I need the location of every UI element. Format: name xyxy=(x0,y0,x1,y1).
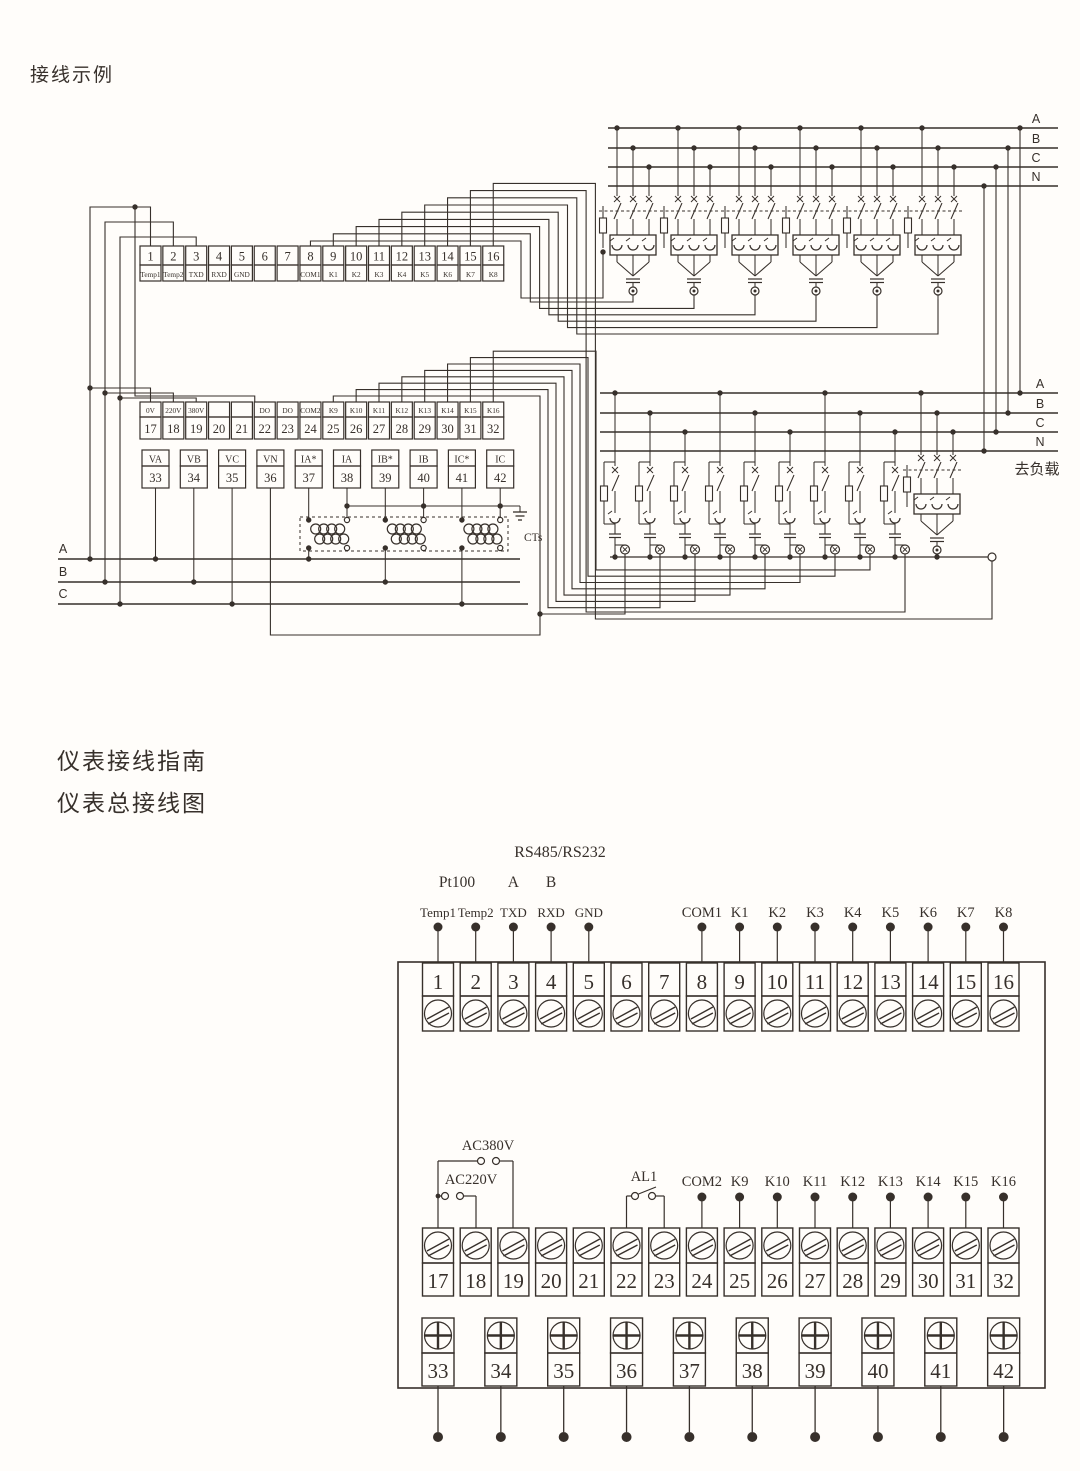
junction-dot xyxy=(936,1432,946,1442)
junction-dot xyxy=(632,290,635,293)
wire xyxy=(993,1239,1015,1251)
wire xyxy=(691,1007,713,1019)
terminal-number: 36 xyxy=(616,1359,637,1383)
junction-dot xyxy=(999,1432,1009,1442)
terminal-number: 35 xyxy=(226,471,239,485)
terminal-box xyxy=(254,265,275,281)
junction-dot xyxy=(848,923,857,932)
wire xyxy=(541,1013,562,1024)
fuse-icon xyxy=(905,218,912,233)
terminal-number: 24 xyxy=(691,1269,713,1293)
junction-dot xyxy=(951,164,956,169)
terminal-number: 28 xyxy=(842,1269,863,1293)
fuse-icon xyxy=(661,218,668,233)
pin-label: K14 xyxy=(916,1174,942,1190)
terminal-number: 10 xyxy=(767,970,788,994)
contactor-pole-icon xyxy=(948,504,958,509)
junction-dot xyxy=(102,390,107,395)
pin-label: COM1 xyxy=(682,905,722,921)
contactor-pole-icon xyxy=(917,245,927,250)
wire xyxy=(270,488,540,635)
terminal-label: 220V xyxy=(165,406,182,415)
pin-label: K12 xyxy=(840,1174,865,1190)
terminal-label: K12 xyxy=(396,406,409,415)
terminal-number: 5 xyxy=(584,970,595,994)
fuse-icon xyxy=(844,218,851,233)
wire xyxy=(729,1239,751,1251)
wire xyxy=(617,1013,638,1024)
terminal-number: 1 xyxy=(433,970,444,994)
wire xyxy=(922,262,938,276)
terminal-number: 9 xyxy=(734,970,745,994)
wire xyxy=(843,1013,864,1024)
ct-terminal-open xyxy=(498,545,503,550)
junction-dot xyxy=(981,183,986,188)
wire xyxy=(379,383,695,601)
al1-label: AL1 xyxy=(631,1169,658,1185)
wire xyxy=(633,262,649,276)
rs-a-label: A xyxy=(508,874,520,891)
pin-label: COM2 xyxy=(682,1174,722,1190)
wire xyxy=(755,262,771,276)
junction-dot xyxy=(229,601,234,606)
wire xyxy=(616,1007,638,1019)
terminal-label: K7 xyxy=(466,270,475,279)
wire xyxy=(428,1013,449,1024)
bus-label: C xyxy=(1031,151,1040,165)
terminal-label: DO xyxy=(282,406,293,415)
wire xyxy=(800,262,816,276)
fuse-icon xyxy=(722,218,729,233)
ct-terminal-open xyxy=(421,545,426,550)
pin-label: TXD xyxy=(500,905,527,920)
wire xyxy=(654,1013,675,1024)
terminal-number: 39 xyxy=(805,1359,826,1383)
junction-dot xyxy=(890,164,895,169)
wire xyxy=(861,262,877,276)
wire xyxy=(694,262,710,276)
terminal-number: 37 xyxy=(679,1359,700,1383)
terminal-number: 15 xyxy=(464,250,477,264)
bus-label: B xyxy=(1032,132,1040,146)
terminal-number: 3 xyxy=(193,250,199,264)
terminal-number: 29 xyxy=(880,1269,901,1293)
terminal-number: 20 xyxy=(213,422,226,436)
capacitor-unit-group xyxy=(811,390,840,559)
junction-dot xyxy=(752,554,757,559)
pin-label: K2 xyxy=(768,905,786,921)
junction-dot xyxy=(434,923,443,932)
to-load-label: 去负载 xyxy=(1014,461,1059,478)
fuse-icon xyxy=(776,486,783,501)
contactor-pole-icon xyxy=(734,245,744,250)
pin-label: RXD xyxy=(537,905,564,920)
terminal-label: IB* xyxy=(378,455,393,466)
junction-dot xyxy=(675,125,680,130)
pt100-label: Pt100 xyxy=(439,874,475,891)
terminal-number: 7 xyxy=(659,970,670,994)
contactor-pole-icon xyxy=(856,245,866,250)
wire xyxy=(766,1007,788,1019)
pin-open-circle xyxy=(478,1158,485,1165)
wire xyxy=(955,1239,977,1251)
junction-dot xyxy=(815,290,818,293)
wire xyxy=(653,1007,675,1019)
junction-dot xyxy=(773,1193,782,1202)
contactor-box xyxy=(914,494,960,514)
contactor-box xyxy=(671,235,717,255)
terminal-label: K16 xyxy=(487,406,500,415)
capacitor-bank-group xyxy=(660,125,718,299)
junction-dot xyxy=(924,1193,933,1202)
contactor-pole-icon xyxy=(933,245,943,250)
junction-dot xyxy=(886,923,895,932)
wire xyxy=(502,1239,524,1251)
wire xyxy=(748,511,752,514)
terminal-label: K4 xyxy=(397,270,406,279)
junction-dot xyxy=(383,517,388,522)
terminal-number: 32 xyxy=(487,422,500,436)
wire xyxy=(880,1245,901,1256)
junction-dot xyxy=(736,125,741,130)
junction-dot xyxy=(584,923,593,932)
junction-dot xyxy=(773,923,782,932)
wire xyxy=(692,1013,713,1024)
terminal-label: K11 xyxy=(373,406,386,415)
terminal-label: K14 xyxy=(441,406,454,415)
terminal-label: K10 xyxy=(350,406,363,415)
wire xyxy=(767,1013,788,1024)
capacitor-bank-group xyxy=(903,390,961,559)
wire xyxy=(427,1239,449,1251)
ct-terminal-open xyxy=(344,545,349,550)
junction-dot xyxy=(822,554,827,559)
wire xyxy=(541,1245,562,1256)
wire xyxy=(805,1245,826,1256)
terminal-number: 4 xyxy=(546,970,557,994)
capacitor-unit-group xyxy=(776,429,805,559)
terminal-number: 34 xyxy=(188,471,201,485)
terminal-label: IB xyxy=(419,455,429,466)
terminal-label: RXD xyxy=(211,270,226,279)
terminal-number: 37 xyxy=(302,471,315,485)
bus-label: N xyxy=(1035,435,1044,449)
wire xyxy=(578,1239,600,1251)
terminal-label: GND xyxy=(234,270,250,279)
contactor-pole-icon xyxy=(855,518,865,523)
contactor-box xyxy=(854,235,900,255)
wire xyxy=(608,511,612,514)
contactor-box xyxy=(915,235,961,255)
wire xyxy=(946,497,950,500)
terminal-label: IA* xyxy=(301,455,317,466)
wire xyxy=(748,238,752,241)
junction-dot xyxy=(383,579,388,584)
junction-dot xyxy=(682,429,687,434)
junction-dot xyxy=(117,601,122,606)
wire xyxy=(120,237,196,604)
wire xyxy=(853,511,857,514)
wire xyxy=(956,1245,977,1256)
fuse-icon xyxy=(904,477,911,492)
terminal-number: 26 xyxy=(767,1269,788,1293)
junction-dot xyxy=(873,1432,883,1442)
bus-label: N xyxy=(1031,170,1040,184)
junction-dot xyxy=(117,395,122,400)
terminal-number: 34 xyxy=(490,1359,512,1383)
wire xyxy=(654,1245,675,1256)
wire xyxy=(643,511,647,514)
junction-dot xyxy=(813,145,818,150)
contactor-box xyxy=(732,235,778,255)
junction-dot xyxy=(436,1194,441,1199)
terminal-number: 16 xyxy=(487,250,500,264)
fuse-icon xyxy=(600,218,607,233)
wire xyxy=(804,1007,826,1019)
manual-page: 接线示例 仪表接线指南 仪表总接线图 1Temp12Temp23TXD4RXD5… xyxy=(0,0,1080,1471)
junction-dot xyxy=(811,1193,820,1202)
contactor-pole-icon xyxy=(949,245,959,250)
terminal-number: 38 xyxy=(742,1359,763,1383)
terminal-number: 19 xyxy=(190,422,203,436)
wire xyxy=(642,238,646,241)
wire xyxy=(888,511,892,514)
fuse-icon xyxy=(741,486,748,501)
terminal-label: K13 xyxy=(418,406,431,415)
capacitor-unit-group xyxy=(881,429,910,559)
junction-dot xyxy=(993,429,998,434)
terminal-label: VB xyxy=(187,455,201,466)
wire xyxy=(767,1245,788,1256)
terminal-label: K3 xyxy=(375,270,384,279)
junction-dot xyxy=(306,556,311,561)
terminal-number: 8 xyxy=(697,970,708,994)
terminal-number: 38 xyxy=(341,471,354,485)
contactor-pole-icon xyxy=(916,504,926,509)
junction-dot xyxy=(892,554,897,559)
wiring-diagram-svg: 1Temp12Temp23TXD4RXD5GND678COM19K110K211… xyxy=(0,0,1080,1471)
junction-dot xyxy=(344,503,349,508)
example-diagram: 1Temp12Temp23TXD4RXD5GND678COM19K110K211… xyxy=(58,112,1060,635)
fuse-icon xyxy=(671,486,678,501)
pin-label: K9 xyxy=(731,1174,749,1190)
wire xyxy=(692,1245,713,1256)
fuse-icon xyxy=(811,486,818,501)
wire xyxy=(937,521,953,535)
terminal-number: 20 xyxy=(541,1269,562,1293)
junction-dot xyxy=(306,545,311,550)
fuse-icon xyxy=(601,486,608,501)
junction-dot xyxy=(787,554,792,559)
terminal-number: 35 xyxy=(553,1359,574,1383)
junction-dot xyxy=(153,556,158,561)
pin-label: K13 xyxy=(878,1174,903,1190)
wire xyxy=(540,1007,562,1019)
junction-dot xyxy=(961,923,970,932)
contactor-pole-icon xyxy=(628,245,638,250)
junction-dot xyxy=(614,125,619,130)
terminal-label: Temp2 xyxy=(163,270,184,279)
terminal-label: IC* xyxy=(454,455,469,466)
terminal-number: 6 xyxy=(262,250,268,264)
bus-label: C xyxy=(1035,416,1044,430)
junction-dot xyxy=(682,554,687,559)
pin-label: Temp2 xyxy=(458,905,494,920)
wire xyxy=(425,205,877,328)
junction-dot xyxy=(612,554,617,559)
capacitor-unit-group xyxy=(601,390,630,559)
terminal-number: 32 xyxy=(993,1269,1014,1293)
terminal-number: 18 xyxy=(167,422,180,436)
wire xyxy=(579,1013,600,1024)
junction-dot xyxy=(717,554,722,559)
pin-label: K15 xyxy=(953,1174,978,1190)
junction-dot xyxy=(459,601,464,606)
pin-open-circle xyxy=(442,1193,449,1200)
terminal-number: 12 xyxy=(842,970,863,994)
wire xyxy=(428,1245,449,1256)
wire xyxy=(938,262,954,276)
wire xyxy=(809,238,813,241)
pin-label: K10 xyxy=(765,1174,790,1190)
terminal-box xyxy=(231,402,252,417)
breaker-icon xyxy=(822,475,829,491)
wire xyxy=(465,1239,487,1251)
wire xyxy=(816,262,832,276)
switch-icon xyxy=(632,1193,639,1200)
wire xyxy=(879,1007,901,1019)
junction-dot xyxy=(752,145,757,150)
terminal-number: 18 xyxy=(465,1269,486,1293)
junction-dot xyxy=(934,410,939,415)
junction-dot xyxy=(754,290,757,293)
pin-label: GND xyxy=(575,905,603,920)
terminal-number: 16 xyxy=(993,970,1014,994)
terminal-number: 26 xyxy=(350,422,363,436)
wire xyxy=(402,212,816,321)
wire xyxy=(783,511,787,514)
terminal-number: 41 xyxy=(456,471,469,485)
pin-label: K1 xyxy=(731,905,749,921)
wire xyxy=(616,1239,638,1251)
wire xyxy=(921,521,937,535)
wire xyxy=(805,1013,826,1024)
contactor-pole-icon xyxy=(705,245,715,250)
terminal-label: TXD xyxy=(189,270,204,279)
cts-label: CTs xyxy=(524,532,543,544)
switch-icon xyxy=(649,1193,656,1200)
pin-label: K3 xyxy=(806,905,824,921)
junction-dot xyxy=(892,429,897,434)
wire xyxy=(713,511,717,514)
junction-dot xyxy=(691,145,696,150)
wire xyxy=(653,1239,675,1251)
terminal-number: 22 xyxy=(616,1269,637,1293)
terminal-number: 12 xyxy=(396,250,409,264)
junction-dot xyxy=(950,429,955,434)
bus-label: B xyxy=(59,565,67,579)
junction-dot xyxy=(87,556,92,561)
junction-dot xyxy=(747,1432,757,1442)
terminal-number: 19 xyxy=(503,1269,524,1293)
wire xyxy=(994,1245,1015,1256)
terminal-label: K2 xyxy=(352,270,361,279)
terminal-label: 0V xyxy=(146,406,156,415)
junction-dot xyxy=(646,164,651,169)
breaker-icon xyxy=(787,475,794,491)
junction-dot xyxy=(768,164,773,169)
junction-dot xyxy=(858,125,863,130)
breaker-icon xyxy=(682,475,689,491)
wire xyxy=(917,1239,939,1251)
terminal-label: VA xyxy=(149,455,163,466)
junction-dot xyxy=(829,164,834,169)
wire xyxy=(918,1013,939,1024)
junction-dot xyxy=(1017,125,1022,130)
ct-terminal-open xyxy=(498,517,503,522)
terminal-label: IC xyxy=(495,455,505,466)
junction-dot xyxy=(752,410,757,415)
pin-label: Temp1 xyxy=(420,905,456,920)
junction-dot xyxy=(1005,410,1010,415)
wire xyxy=(993,1007,1015,1019)
wire xyxy=(879,1239,901,1251)
breaker-icon xyxy=(612,475,619,491)
capacitor-unit-group xyxy=(671,429,700,559)
junction-dot xyxy=(810,1432,820,1442)
wire xyxy=(930,497,934,500)
junction-dot xyxy=(936,549,939,552)
terminal-box xyxy=(209,402,230,417)
terminal-number: 27 xyxy=(805,1269,826,1293)
contactor-pole-icon xyxy=(795,245,805,250)
wire xyxy=(135,207,255,402)
wire xyxy=(931,238,935,241)
junction-dot xyxy=(647,410,652,415)
junction-dot xyxy=(693,290,696,293)
wire xyxy=(466,1013,487,1024)
pin-label: K4 xyxy=(844,905,862,921)
terminal-number: 28 xyxy=(396,422,409,436)
terminal-number: 30 xyxy=(441,422,454,436)
junction-dot xyxy=(421,503,426,508)
pin-label: K6 xyxy=(919,905,937,921)
terminal-number: 4 xyxy=(216,250,223,264)
capacitor-unit-group xyxy=(706,390,735,559)
wire xyxy=(502,1007,524,1019)
contactor-pole-icon xyxy=(888,245,898,250)
terminal-number: 1 xyxy=(147,250,153,264)
wire xyxy=(730,1245,751,1256)
capacitor-bank-group xyxy=(782,125,840,299)
wire xyxy=(825,238,829,241)
terminal-number: 23 xyxy=(281,422,294,436)
terminal-number: 23 xyxy=(654,1269,675,1293)
breaker-icon xyxy=(717,475,724,491)
capacitor-bank-group xyxy=(599,125,657,299)
junction-dot xyxy=(999,1193,1008,1202)
junction-dot xyxy=(822,390,827,395)
terminal-label: VC xyxy=(225,455,239,466)
contactor-pole-icon xyxy=(644,245,654,250)
terminal-number: 22 xyxy=(259,422,272,436)
contactor-pole-icon xyxy=(689,245,699,250)
wire xyxy=(842,1007,864,1019)
wire xyxy=(956,1013,977,1024)
terminal-number: 39 xyxy=(379,471,392,485)
fuse-icon xyxy=(783,218,790,233)
junction-dot xyxy=(919,125,924,130)
